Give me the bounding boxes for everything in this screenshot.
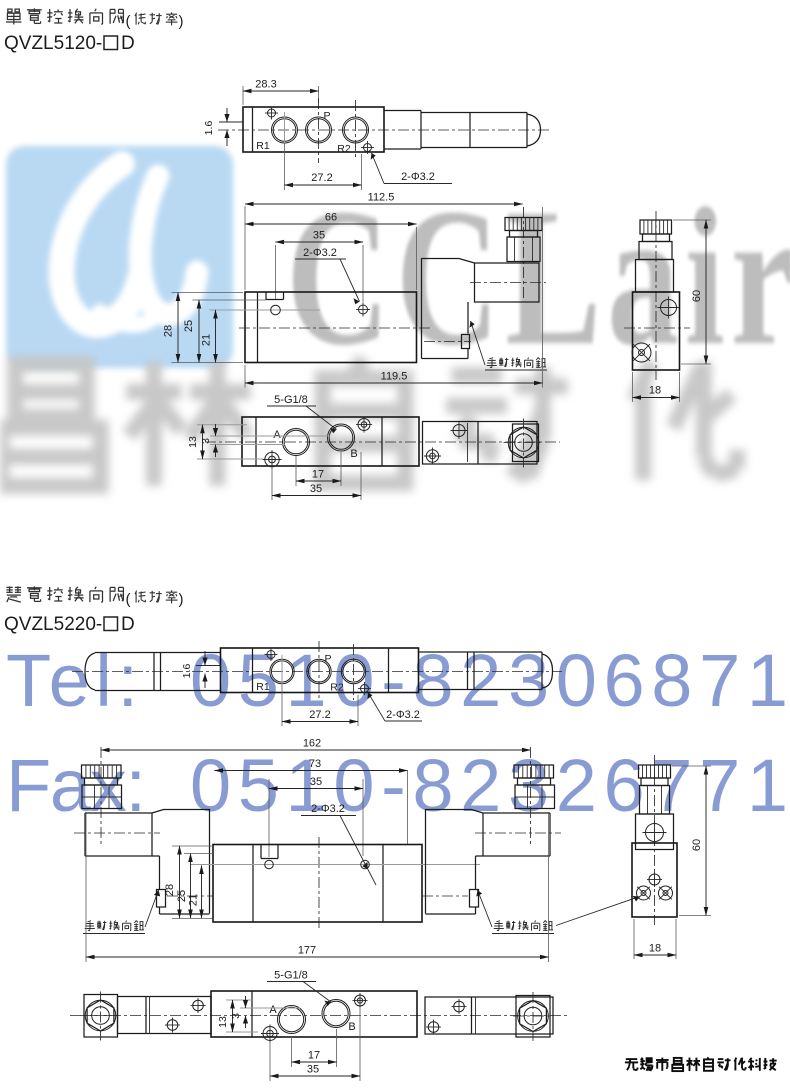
svg-text:QVZL5120-: QVZL5120- <box>4 33 102 54</box>
svg-text:18: 18 <box>649 943 661 955</box>
svg-text:162: 162 <box>303 738 321 750</box>
svg-text:119.5: 119.5 <box>381 371 408 383</box>
svg-text:177: 177 <box>298 945 316 957</box>
svg-text:18: 18 <box>649 385 661 397</box>
svg-text:2-Φ3.2: 2-Φ3.2 <box>311 803 345 815</box>
svg-text:17: 17 <box>308 1050 320 1062</box>
svg-text:B: B <box>348 1021 355 1033</box>
svg-text:25: 25 <box>183 320 195 332</box>
svg-text:28.3: 28.3 <box>255 79 276 91</box>
svg-text:17: 17 <box>312 469 324 481</box>
svg-text:D: D <box>121 33 135 54</box>
svg-text:25: 25 <box>176 890 188 902</box>
svg-text:13: 13 <box>217 1016 229 1028</box>
svg-text:P: P <box>323 110 330 122</box>
svg-text:60: 60 <box>691 839 703 851</box>
svg-text:1.6: 1.6 <box>181 664 193 679</box>
svg-text:R1: R1 <box>256 681 270 693</box>
svg-text:3: 3 <box>200 438 212 444</box>
svg-text:(: ( <box>126 591 131 608</box>
svg-text:27.2: 27.2 <box>309 709 330 721</box>
svg-text:5-G1/8: 5-G1/8 <box>274 394 308 406</box>
svg-text:B: B <box>350 448 357 460</box>
svg-text:): ) <box>179 591 184 608</box>
svg-text:1.6: 1.6 <box>203 121 215 136</box>
svg-text:35: 35 <box>310 483 322 495</box>
svg-text:A: A <box>269 1004 277 1016</box>
svg-text:27.2: 27.2 <box>311 172 332 184</box>
svg-text:QVZL5220-: QVZL5220- <box>4 614 102 635</box>
svg-text:3: 3 <box>230 1013 242 1019</box>
svg-text:35: 35 <box>307 1064 319 1076</box>
svg-text:P: P <box>324 653 331 665</box>
svg-text:60: 60 <box>691 290 703 302</box>
svg-text:2-Φ3.2: 2-Φ3.2 <box>401 171 435 183</box>
svg-text:35: 35 <box>313 230 325 242</box>
svg-text:21: 21 <box>188 894 200 906</box>
svg-text:2-Φ3.2: 2-Φ3.2 <box>303 247 337 259</box>
svg-text:5-G1/8: 5-G1/8 <box>274 970 308 982</box>
svg-text:13: 13 <box>187 436 199 448</box>
svg-text:(: ( <box>126 13 131 30</box>
svg-text:R2: R2 <box>337 143 351 155</box>
svg-text:R1: R1 <box>256 140 270 152</box>
svg-text:): ) <box>179 13 184 30</box>
svg-text:2-Φ3.2: 2-Φ3.2 <box>386 709 420 721</box>
svg-text:28: 28 <box>163 325 175 337</box>
svg-text:73: 73 <box>309 758 321 770</box>
svg-text:66: 66 <box>325 212 337 224</box>
svg-text:35: 35 <box>310 776 322 788</box>
svg-text:D: D <box>121 614 135 635</box>
svg-text:21: 21 <box>201 334 213 346</box>
svg-text:112.5: 112.5 <box>368 192 395 204</box>
svg-text:28: 28 <box>164 884 176 896</box>
svg-text:A: A <box>273 429 281 441</box>
svg-text:R2: R2 <box>330 682 344 694</box>
